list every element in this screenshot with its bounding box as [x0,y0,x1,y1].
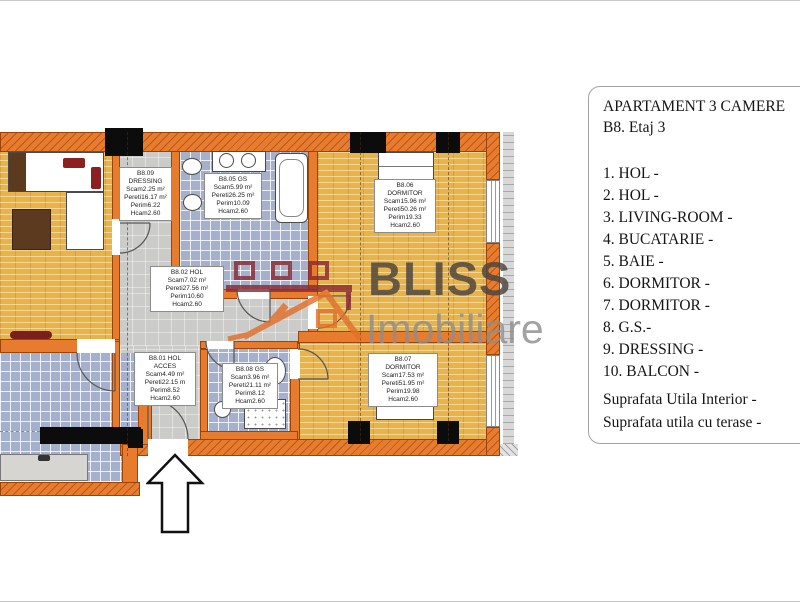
label-line: Perim8.52 [136,387,194,395]
sofa-chaise [66,192,104,250]
wall-top [0,132,500,152]
window-right-upper [486,180,500,243]
bidet [183,194,202,211]
label-line: Scam7.02 m² [152,277,222,285]
column [350,132,386,153]
label-line: Pereti16.17 m² [121,194,170,202]
label-line: Pereti50.26 m² [376,206,434,214]
room-list-item: 5. BAIE - [603,251,800,273]
bed-pillow-line [379,166,433,167]
sink [241,153,256,168]
axis-line [360,132,361,441]
summary-line: Suprafata Utila Interior - [603,388,800,411]
wall-holacces-left [112,341,120,441]
wall-bucatarie-bottom [0,482,140,496]
room-list-item: 4. BUCATARIE - [603,229,800,251]
label-line: Pereti22.15 m [136,379,194,387]
area-summary: Suprafata Utila Interior - Suprafata uti… [603,388,800,434]
floor-plan-listing-image: B8.09 DRESSING Scam2.25 m² Pereti16.17 m… [0,0,800,602]
label-line: Scam4.49 m² [136,371,194,379]
door-gap-baie [237,289,270,299]
label-line: DRESSING [121,178,170,186]
label-line: Perim10.09 [206,200,260,208]
room-list-item: 2. HOL - [603,185,800,207]
label-line: Perim19.33 [376,214,434,222]
label-line: Perim8.12 [224,390,276,398]
panel-title: APARTAMENT 3 CAMERE [603,96,800,117]
label-line: DORMITOR [376,190,434,198]
label-line: Scam17.53 m² [370,372,436,380]
panel-subtitle: B8. Etaj 3 [603,117,800,138]
apartment-info-panel: APARTAMENT 3 CAMERE B8. Etaj 3 1. HOL - … [588,86,800,444]
room-label-gs: B8.08 GS Scam3.96 m² Pereti21.11 m² Peri… [222,363,278,409]
room-list: 1. HOL - 2. HOL - 3. LIVING-ROOM - 4. BU… [603,163,800,383]
label-line: Pereti51.95 m² [370,380,436,388]
door-gap-dressing [112,219,120,255]
room-list-item: 3. LIVING-ROOM - [603,207,800,229]
wall-right-c [486,427,500,456]
label-line: B8.01 HOL [136,355,194,363]
tv-console [10,331,52,339]
section-cut-bar [40,427,141,444]
window-right-lower [486,355,500,427]
toilet [182,158,202,175]
label-line: B8.09 [121,170,170,178]
summary-line: Suprafata utila cu terase - [603,411,800,434]
sofa-cushion [63,158,85,168]
label-line: Perim6.22 [121,202,170,210]
room-label-dormitor-1: B8.06 DORMITOR Scam15.96 m² Pereti50.26 … [374,179,436,233]
room-list-item: 6. DORMITOR - [603,273,800,295]
entrance-arrow-icon [146,453,206,535]
wall-right-b [486,243,500,355]
door-gap-dormitor1 [308,296,318,329]
room-label-dressing: B8.09 DRESSING Scam2.25 m² Pereti16.17 m… [119,167,172,221]
label-line: Scam2.25 m² [121,186,170,194]
room-label-baie: B8.05 GS Scam5.99 m² Pereti26.25 m² Peri… [204,173,262,219]
label-line: Hcam2.60 [376,222,434,230]
coffee-table [12,209,51,250]
door-gap-bucatarie [77,339,115,353]
axis-line [448,132,449,441]
room-list-item: 7. DORMITOR - [603,295,800,317]
label-line: Hcam2.60 [370,396,436,404]
label-line: Hcam2.60 [136,395,194,403]
label-line: Pereti26.25 m² [206,192,260,200]
sink [219,153,234,168]
label-line: B8.06 [376,182,434,190]
label-line: Hcam2.60 [152,301,222,309]
label-line: Scam15.96 m² [376,198,434,206]
label-line: B8.07 [370,356,436,364]
door-gap-gs [206,341,234,349]
label-line: Pereti21.11 m² [224,382,276,390]
column [348,421,370,444]
bathtub-inner [279,159,304,217]
label-line: Scam3.96 m² [224,374,276,382]
label-line: Perim19.98 [370,388,436,396]
room-label-hol: B8.02 HOL Scam7.02 m² Pereti27.56 m² Per… [150,266,224,312]
column [105,128,143,156]
wall-right-a [486,132,500,180]
balcony-edge-strip [503,132,514,444]
room-list-item: 1. HOL - [603,163,800,185]
label-line: Pereti27.56 m² [152,285,222,293]
room-list-item: 8. G.S.- [603,317,800,339]
room-list-item: 10. BALCON - [603,361,800,383]
label-line: Perim10.60 [152,293,222,301]
sofa-cushion [91,167,101,189]
label-line: B8.02 HOL [152,269,222,277]
label-line: B8.08 GS [224,366,276,374]
wall-dormitor-divider [298,331,488,343]
axis-line [0,431,40,432]
label-line: DORMITOR [370,364,436,372]
room-list-item: 9. DRESSING - [603,339,800,361]
door-gap-dormitor2 [290,349,300,379]
label-line: Hcam2.60 [224,398,276,406]
label-line: Hcam2.60 [206,208,260,216]
radiator [376,405,434,420]
label-line: Scam5.99 m² [206,184,260,192]
sofa-armrest [9,153,26,191]
column [128,429,143,448]
label-line: Hcam2.60 [121,210,170,218]
room-label-dormitor-2: B8.07 DORMITOR Scam17.53 m² Pereti51.95 … [368,353,438,407]
kitchen-faucet [38,455,50,461]
wall-holacces-gs [200,349,208,433]
label-line: ACCES [136,363,194,371]
room-label-hol-acces: B8.01 HOL ACCES Scam4.49 m² Pereti22.15 … [134,352,196,406]
label-line: B8.05 GS [206,176,260,184]
